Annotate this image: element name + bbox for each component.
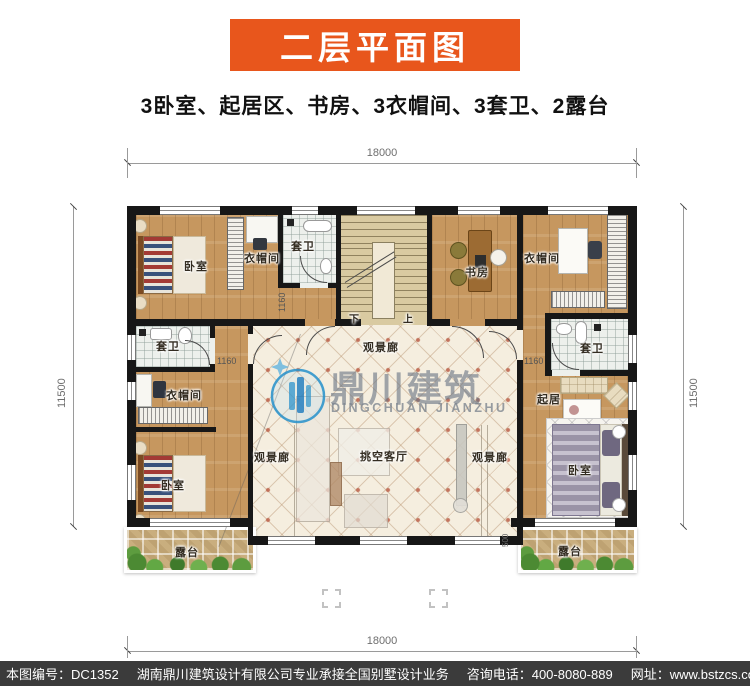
- bathtub-top: [303, 220, 332, 232]
- dingchuan-logo-icon: [268, 352, 326, 438]
- label-cloakroom-tr: 衣帽间: [524, 250, 560, 266]
- bath-fixture-left: [139, 329, 146, 336]
- label-terrace-right: 露台: [558, 543, 582, 559]
- label-gallery-right: 观景廊: [472, 449, 508, 465]
- wardrobe-top-left: [227, 217, 244, 290]
- dressing-chair-tr: [588, 241, 602, 259]
- dim-right-value: 11500: [688, 328, 700, 408]
- window-bottom-3: [455, 536, 500, 545]
- dim-ext: [636, 148, 637, 178]
- label-void-living: 挑空客厅: [360, 448, 408, 464]
- footer-drawing-number: 本图编号：DC1352: [6, 664, 119, 683]
- window-bottom-2: [360, 536, 407, 545]
- dim-line-top: [127, 163, 637, 164]
- dim-500: 500: [501, 527, 510, 547]
- ghost-bench: [344, 494, 388, 528]
- side-table: [612, 425, 626, 439]
- label-gallery-top: 观景廊: [363, 339, 399, 355]
- dim-line-right: [683, 206, 684, 527]
- dim-ext: [127, 636, 128, 658]
- label-bath-left: 套卫: [156, 338, 180, 354]
- wall-bath-right-left: [545, 319, 551, 375]
- footer-website: 网址：www.bstzcs.com: [631, 664, 750, 683]
- wardrobe-top-right: [607, 214, 627, 309]
- sofa-living: [560, 377, 608, 394]
- watermark: 鼎川建筑 DINGCHUAN JIANZHU: [268, 352, 498, 444]
- study-desk: [468, 230, 492, 292]
- wall-bath-top-left: [278, 215, 283, 283]
- ghost-cabinet: [330, 462, 342, 506]
- door-gap-corridor: [305, 319, 335, 326]
- label-terrace-left: 露台: [175, 544, 199, 560]
- wardrobe-top-right-2: [551, 291, 605, 308]
- dim-line-left: [73, 206, 74, 527]
- wardrobe-left: [138, 407, 208, 424]
- window-right-2: [628, 382, 637, 410]
- dim-bottom-value: 18000: [342, 635, 422, 647]
- floor-plan-page: 二层平面图 3卧室、起居区、书房、3衣帽间、3套卫、2露台: [0, 0, 750, 686]
- window-bedroom-br: [535, 518, 615, 527]
- sink-right: [556, 323, 572, 335]
- label-gallery-left: 观景廊: [254, 449, 290, 465]
- window-top-3: [357, 206, 415, 215]
- ghost-stool: [453, 498, 468, 513]
- label-cloakroom-tl: 衣帽间: [244, 250, 280, 266]
- wall-study-right: [517, 215, 523, 325]
- side-table: [612, 498, 626, 512]
- window-right-3: [628, 455, 637, 490]
- study-globe: [490, 249, 507, 266]
- bath-fixture-top: [287, 219, 294, 226]
- dim-top-value: 18000: [342, 147, 422, 159]
- label-bedroom-bl: 卧室: [161, 477, 185, 493]
- page-subtitle: 3卧室、起居区、书房、3衣帽间、3套卫、2露台: [0, 90, 750, 120]
- column-marker-1: [322, 589, 341, 608]
- dim-1160-vertical: 1160: [277, 282, 287, 312]
- label-study: 书房: [465, 264, 489, 280]
- dim-1160-right: 1160: [524, 356, 543, 366]
- dim-left-value: 11500: [56, 328, 68, 408]
- label-living: 起居: [537, 391, 561, 407]
- footer-company: 湖南鼎川建筑设计有限公司专业承接全国别墅设计业务: [137, 664, 449, 683]
- window-left-2: [127, 382, 136, 400]
- dim-ext: [636, 636, 637, 658]
- vanity-chair-left: [153, 381, 166, 398]
- page-title: 二层平面图: [280, 21, 470, 69]
- coffee-table-living: [563, 399, 601, 420]
- watermark-en-text: DINGCHUAN JIANZHU: [331, 401, 508, 415]
- door-gap-atrium-right: [517, 330, 523, 360]
- vanity-left: [136, 374, 152, 407]
- window-left-3: [127, 465, 136, 500]
- footer-bar: 本图编号：DC1352 湖南鼎川建筑设计有限公司专业承接全国别墅设计业务 咨询电…: [0, 661, 750, 686]
- window-top-1: [160, 206, 220, 215]
- window-top-4: [458, 206, 500, 215]
- wall-stairs-left: [336, 215, 341, 319]
- dim-line-bottom: [127, 651, 637, 652]
- page-title-banner: 二层平面图: [230, 19, 520, 71]
- window-left-1: [127, 335, 136, 360]
- study-chair: [450, 242, 467, 259]
- window-bottom-1: [268, 536, 315, 545]
- door-gap-bath-top: [300, 283, 328, 288]
- dim-ext: [127, 148, 128, 178]
- label-bedroom-tl: 卧室: [184, 258, 208, 274]
- window-top-5: [548, 206, 608, 215]
- label-stair-down: 下: [349, 311, 359, 326]
- label-bedroom-br: 卧室: [568, 462, 592, 478]
- window-top-2: [292, 206, 318, 215]
- dressing-table-tr: [558, 228, 588, 274]
- wall-bath-left-bottom: [136, 367, 215, 372]
- label-bath-top: 套卫: [291, 238, 315, 254]
- label-bath-right: 套卫: [580, 340, 604, 356]
- column-marker-2: [429, 589, 448, 608]
- window-bedroom-bl: [150, 518, 230, 527]
- wall-cloak-bed-divider: [136, 427, 216, 432]
- wall-bath-right-top: [545, 313, 637, 319]
- label-stair-up: 上: [403, 311, 413, 326]
- chair-top-left: [253, 238, 267, 250]
- wall-stairs-right: [427, 215, 432, 319]
- label-cloakroom-left: 衣帽间: [166, 387, 202, 403]
- door-gap-study: [450, 319, 485, 326]
- dim-1160-left: 1160: [217, 356, 236, 366]
- window-right-1: [628, 335, 637, 363]
- stair-steps-left-run: [341, 248, 372, 318]
- door-gap-bath-right: [552, 370, 580, 376]
- bath-fixture-right: [594, 324, 601, 331]
- door-gap-bath-left: [210, 338, 215, 364]
- footer-phone: 咨询电话：400-8080-889: [467, 664, 613, 683]
